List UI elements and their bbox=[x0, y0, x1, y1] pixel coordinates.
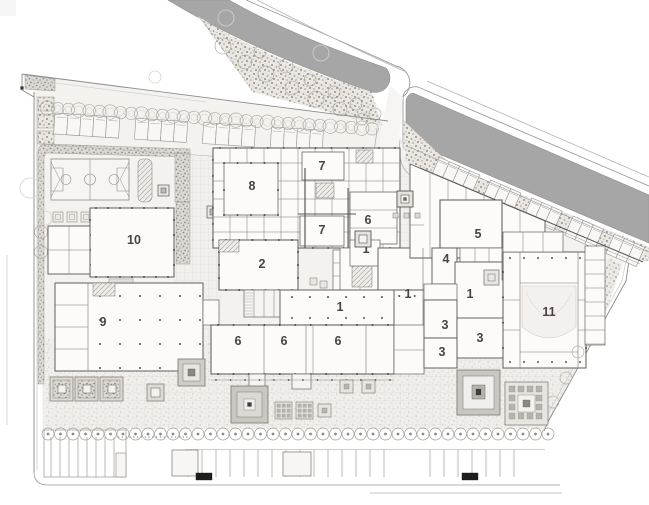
svg-text:6: 6 bbox=[281, 334, 288, 348]
svg-text:7: 7 bbox=[319, 223, 326, 237]
svg-text:2: 2 bbox=[259, 257, 266, 271]
svg-text:3: 3 bbox=[477, 331, 484, 345]
svg-text:6: 6 bbox=[335, 334, 342, 348]
svg-text:3: 3 bbox=[439, 345, 446, 359]
svg-text:6: 6 bbox=[235, 334, 242, 348]
svg-text:7: 7 bbox=[319, 159, 326, 173]
svg-text:9: 9 bbox=[100, 315, 107, 329]
svg-text:4: 4 bbox=[443, 252, 450, 266]
svg-text:6: 6 bbox=[365, 213, 372, 227]
svg-text:3: 3 bbox=[442, 318, 449, 332]
svg-text:5: 5 bbox=[475, 227, 482, 241]
svg-text:1: 1 bbox=[467, 287, 474, 301]
svg-text:1: 1 bbox=[337, 300, 344, 314]
svg-text:10: 10 bbox=[127, 233, 141, 247]
svg-text:1: 1 bbox=[405, 287, 412, 301]
svg-text:8: 8 bbox=[249, 179, 256, 193]
svg-text:11: 11 bbox=[542, 305, 555, 319]
